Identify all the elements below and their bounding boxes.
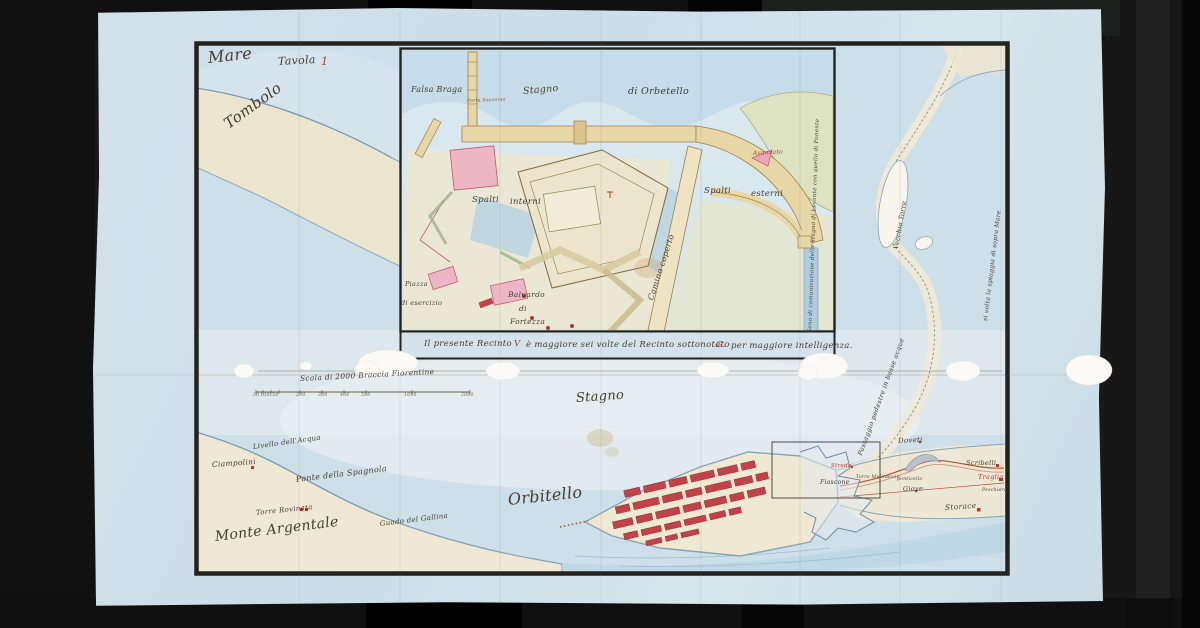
- label-spalti-interni-1: Spalti: [472, 196, 499, 205]
- label-stagno-inset: Stagno: [523, 84, 559, 97]
- label-di-orbetello: di Orbetello: [628, 87, 689, 97]
- label-tick-50: 50: [253, 394, 259, 399]
- label-vecchia-torre: Vecchia Torre: [893, 200, 908, 250]
- label-tick-400: 400: [340, 394, 350, 399]
- label-avanzato: Avanzato: [753, 149, 783, 157]
- label-strada: Strada: [831, 464, 852, 470]
- label-caption-1: Il presente Recinto: [424, 340, 512, 349]
- label-ponticello: ponticello: [897, 478, 923, 483]
- label-spalti-interni-2: interni: [510, 198, 541, 207]
- label-camino-coperto: Camino coperto: [647, 233, 676, 301]
- label-caption-3: per maggiore intelligenza.: [731, 342, 853, 351]
- label-torre-rovinata: Torre Rovinata: [256, 504, 313, 517]
- label-tick-300: 300: [318, 394, 328, 399]
- label-stagno-main: Stagno: [576, 389, 625, 405]
- label-baluardo-2: di: [519, 305, 527, 313]
- label-caption-2: è maggiore sei volte del Recinto sottono…: [526, 341, 730, 350]
- label-storace: Storace: [945, 502, 977, 512]
- label-monte-argentale: Monte Argentale: [214, 515, 339, 544]
- label-scribelli: Scribelli: [966, 460, 996, 467]
- label-doveti: Doveti: [898, 437, 923, 445]
- label-tick-150: 150: [269, 394, 279, 399]
- label-tavola: Tavola: [278, 54, 316, 67]
- label-tick-200: 200: [296, 394, 306, 399]
- label-seno-note: Seno di comunicazione dello Stagno di Le…: [808, 119, 821, 333]
- label-falsa-braga: Falsa Braga: [411, 86, 462, 94]
- label-ciampolini: Ciampolini: [212, 458, 256, 469]
- label-piazza-2: di esercizio: [401, 300, 442, 307]
- label-tavola-number: 1: [321, 56, 328, 67]
- label-spalti-esterni-1: Spalti: [704, 187, 731, 196]
- label-guado-gallina: Guado del Gallina: [380, 513, 449, 528]
- label-tombolo: Tombolo: [222, 80, 285, 131]
- label-piazza-1: Piazza: [405, 281, 428, 288]
- label-mare: Mare: [207, 45, 253, 66]
- label-baluardo-1: Baluardo: [508, 291, 545, 299]
- label-ponte-spagnola: Ponte della Spagnola: [296, 465, 388, 484]
- label-right-edge-note: si volta la spiaggia di sopra Mare: [983, 210, 1003, 321]
- label-orbitello: Orbitello: [507, 484, 583, 508]
- labels-layer: MareTavola1TomboloFalsa BragaStagnodi Or…: [0, 0, 1200, 628]
- label-traglia: Traglia: [978, 474, 1004, 481]
- label-giove: Giove: [903, 485, 923, 492]
- label-livello-acqua: Livello dell'Acqua: [253, 435, 322, 451]
- label-porta-soccorso: Porta Soccorso: [467, 99, 506, 105]
- label-caption-g: G.: [716, 341, 726, 350]
- label-tick-500: 500: [361, 394, 371, 399]
- label-spalti-esterni-2: esterni: [751, 190, 783, 199]
- label-caption-v: V: [514, 340, 520, 349]
- label-tick-1000: 1000: [404, 394, 417, 399]
- label-tick-2000: 2000: [461, 394, 474, 399]
- label-baluardo-3: Fortezza: [510, 318, 545, 326]
- label-scale-label: Scala di 2000 Braccia Fiorentine: [300, 368, 435, 383]
- label-peschiera: Peschiera: [982, 489, 1007, 494]
- photographed-antique-map: { "map": { "colors": { "paper": "#cfe0e9…: [0, 0, 1200, 628]
- label-fiascone: Fiascone: [820, 480, 850, 486]
- label-torre-mulinaccio: Torre Mulinaccio: [856, 476, 900, 481]
